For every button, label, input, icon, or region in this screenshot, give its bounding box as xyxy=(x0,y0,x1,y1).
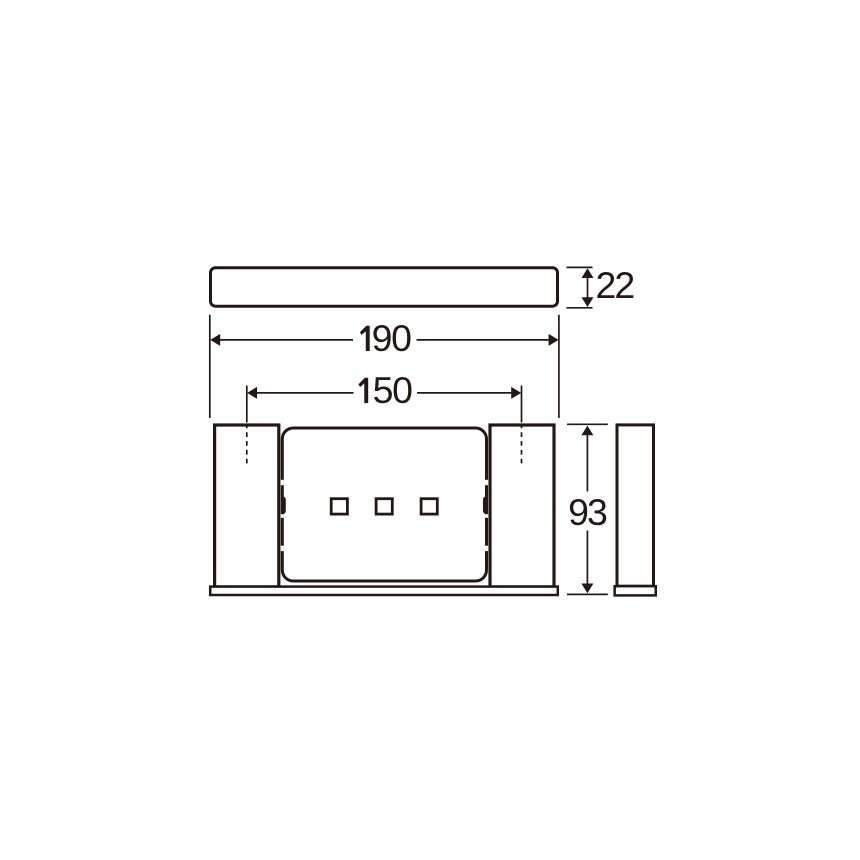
svg-text:50: 50 xyxy=(373,369,413,411)
svg-text:22: 22 xyxy=(596,264,634,306)
svg-text:93: 93 xyxy=(568,491,607,533)
svg-text:90: 90 xyxy=(372,317,412,359)
